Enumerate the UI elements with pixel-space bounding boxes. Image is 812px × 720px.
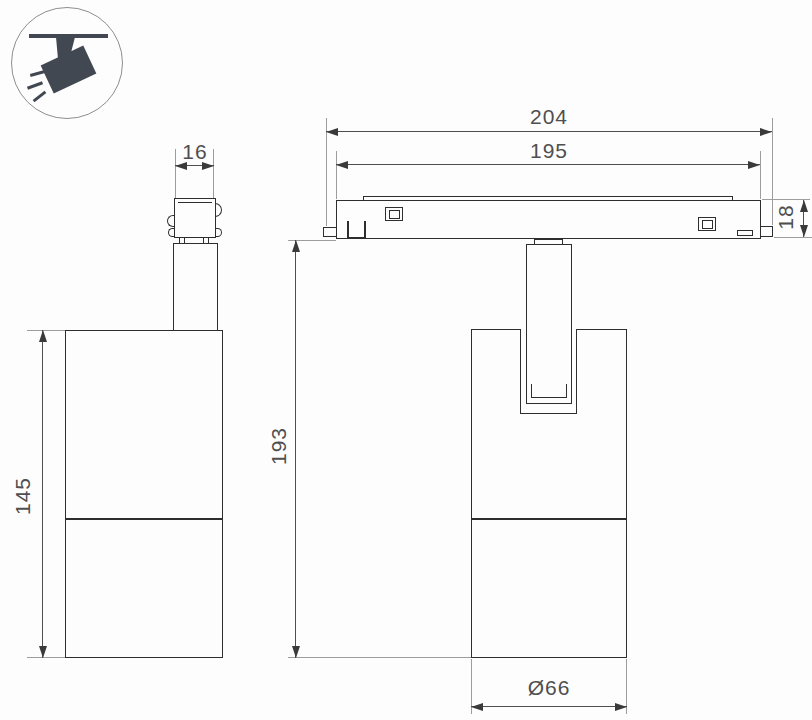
icon-circle-badge	[11, 7, 123, 119]
dim195-extension-right	[760, 151, 761, 199]
dim66-label: Ø66	[509, 677, 589, 699]
front-body-divider	[472, 518, 626, 520]
side-body-divider	[66, 518, 222, 520]
dim204-arrow-right	[760, 128, 772, 136]
dim195-extension-left	[336, 151, 337, 199]
dim204-line	[326, 131, 772, 132]
front-stem-inner-socket	[531, 384, 567, 398]
track-end-tab-right	[759, 226, 773, 237]
dim145-arrow-top	[39, 330, 47, 342]
dim66-arrow-right	[615, 703, 627, 711]
dim195-label: 195	[509, 140, 589, 162]
dim145-arrow-bottom	[39, 646, 47, 658]
track-connector-right-inner	[702, 220, 713, 229]
dim66-line	[471, 706, 627, 707]
dim204-arrow-left	[326, 128, 338, 136]
light-ray-2	[27, 81, 43, 89]
light-ray-3	[33, 91, 47, 103]
adapter-top-inner-line	[178, 202, 212, 203]
dim193-arrow-top	[292, 240, 300, 252]
side-body	[65, 330, 223, 658]
dim18-arrow-bottom	[800, 225, 808, 237]
track-clip-u	[347, 221, 366, 239]
dim195-line	[336, 164, 760, 165]
dim195-arrow-left	[336, 161, 348, 169]
track-connector-left-inner	[389, 210, 400, 219]
technical-drawing-canvas: 16 145 204 195 18	[0, 0, 812, 720]
dim193-label: 193	[268, 411, 290, 481]
track-flat-tab-right	[737, 230, 753, 236]
dim18-extension-bottom	[774, 237, 812, 238]
front-stem	[526, 244, 572, 404]
adapter-ear-right-small	[215, 228, 222, 237]
dim193-arrow-bottom	[292, 646, 300, 658]
dim195-arrow-right	[748, 161, 760, 169]
dim16-arrow-right	[202, 162, 214, 170]
dim16-label: 16	[175, 141, 215, 163]
light-ray-1	[30, 70, 45, 77]
dim193-line	[295, 240, 296, 658]
dim145-label: 145	[12, 461, 34, 531]
lamp-head-glyph	[41, 46, 97, 94]
dim204-extension-right	[772, 118, 773, 225]
dim66-arrow-left	[471, 703, 483, 711]
dim16-arrow-left	[175, 162, 187, 170]
side-track-adapter	[174, 198, 216, 238]
dim18-label: 18	[775, 197, 797, 237]
side-neck	[173, 243, 218, 331]
dim193-extension-bottom	[288, 657, 471, 658]
dim18-arrow-top	[800, 200, 808, 212]
dim145-line	[42, 330, 43, 658]
dim204-label: 204	[509, 106, 589, 128]
